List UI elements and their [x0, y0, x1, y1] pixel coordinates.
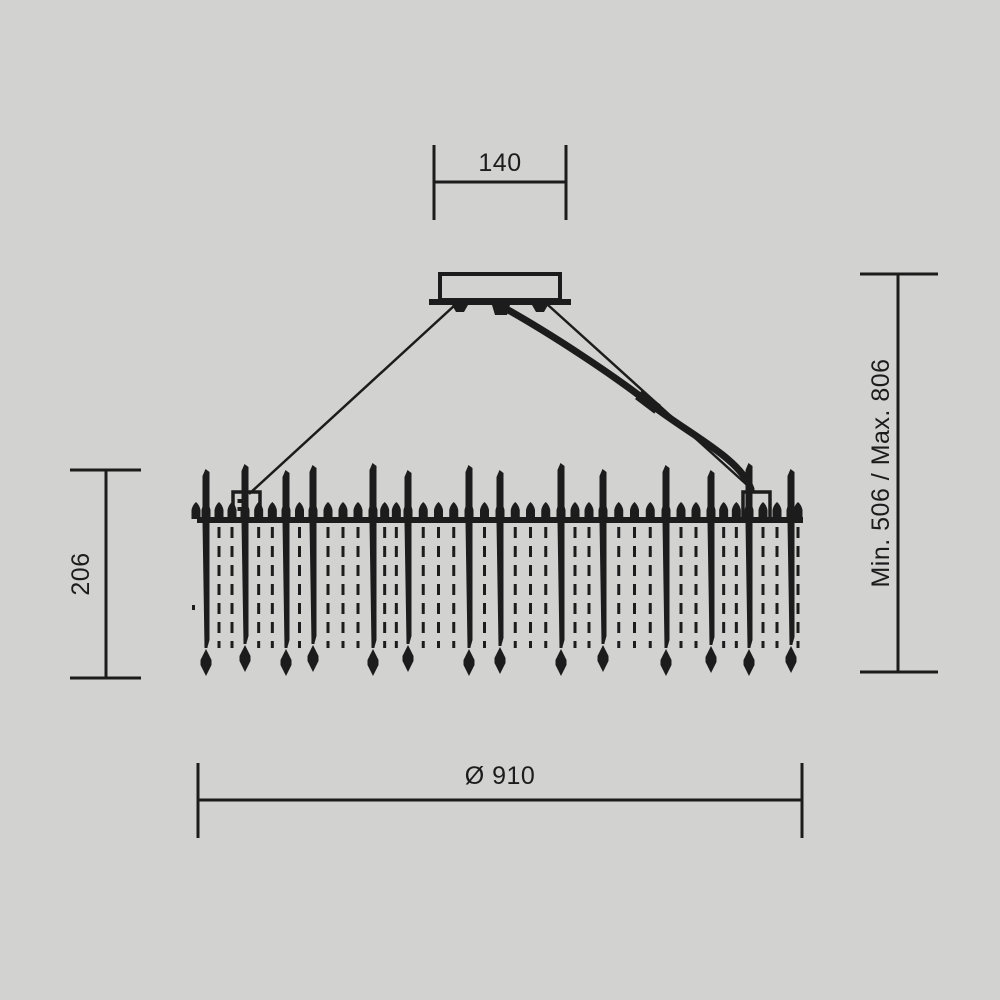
power-cable: [501, 306, 751, 489]
crystal-rod-lower: [558, 522, 565, 648]
flame-bead: [732, 502, 741, 519]
flame-bead: [339, 502, 348, 519]
ring-frame: [197, 517, 803, 523]
crystal-rod-lower: [283, 522, 290, 648]
crystal-rod-lower: [203, 522, 210, 648]
crystal-drop-tip: [598, 645, 609, 672]
flame-bead: [773, 502, 782, 519]
bracket-mark: [748, 507, 753, 511]
flame-bead: [677, 502, 686, 519]
flame-bead: [541, 502, 550, 519]
suspension-height-value: Min. 506 / Max. 806: [867, 358, 895, 587]
flame-bead: [794, 502, 803, 519]
chandelier-dimension-drawing: 140 206 Min. 506 / Max. 806 Ø 910: [0, 0, 1000, 1000]
flame-bead: [692, 502, 701, 519]
flame-bead: [295, 502, 304, 519]
flame-bead: [614, 502, 623, 519]
crystal-drop-tip: [281, 649, 292, 676]
crystal-rod-lower: [788, 522, 795, 645]
crystal-rod-lower: [663, 522, 670, 648]
dimension-suspension-height: Min. 506 / Max. 806: [860, 274, 938, 672]
flame-bead: [434, 502, 443, 519]
flame-bead: [719, 502, 728, 519]
crystal-rod-lower: [242, 522, 249, 644]
flame-bead: [759, 502, 768, 519]
crystal-rod-lower: [708, 522, 715, 645]
bracket-mark: [748, 499, 753, 503]
flame-bead: [419, 502, 428, 519]
flame-bead: [324, 502, 333, 519]
crystal-drop-tip: [495, 647, 506, 674]
crystal-drop-tip: [464, 649, 475, 676]
flame-bead: [480, 502, 489, 519]
crystal-drop-tip: [240, 645, 251, 672]
dimension-canopy-width: 140: [434, 145, 566, 220]
crystal-drop-tip: [786, 646, 797, 673]
stray-mark: [192, 605, 195, 610]
crystal-rods-lower: [201, 522, 797, 676]
fixture-height-value: 206: [67, 552, 95, 595]
crystal-drop-tip: [744, 649, 755, 676]
bracket-mark: [238, 499, 243, 503]
flame-bead: [380, 502, 389, 519]
diameter-value: Ø 910: [465, 762, 536, 790]
flame-bead: [449, 502, 458, 519]
crystal-rod-lower: [600, 522, 607, 644]
flame-bead: [646, 502, 655, 519]
flame-bead: [571, 502, 580, 519]
crystal-rod-lower: [310, 522, 317, 644]
dimension-fixture-height: 206: [67, 470, 141, 678]
flame-bead: [268, 502, 277, 519]
crystal-drop-tip: [706, 646, 717, 673]
bracket-mark: [238, 507, 243, 511]
diagram-stage: 140 206 Min. 506 / Max. 806 Ø 910: [0, 0, 1000, 1000]
canopy-width-value: 140: [478, 149, 521, 177]
crystal-rod-lower: [466, 522, 473, 648]
crystal-rod-lower: [370, 522, 377, 648]
crystal-drop-tip: [661, 649, 672, 676]
flame-bead: [511, 502, 520, 519]
crystal-rod-lower: [497, 522, 504, 646]
flame-bead: [585, 502, 594, 519]
crystal-drop-tip: [201, 649, 212, 676]
suspension-wire-left: [249, 305, 455, 494]
crystal-drop-tip: [403, 645, 414, 672]
flame-bead: [192, 502, 201, 519]
flame-bead: [354, 502, 363, 519]
flame-bead: [392, 502, 401, 519]
canopy-foot: [532, 305, 548, 312]
crystal-drop-tip: [368, 649, 379, 676]
flame-bead: [215, 502, 224, 519]
dimension-diameter: Ø 910: [198, 762, 802, 838]
crystal-rod-lower: [405, 522, 412, 644]
canopy-body: [440, 274, 560, 300]
crystal-drop-tip: [308, 645, 319, 672]
crystal-rod-lower: [746, 522, 753, 648]
flame-bead: [526, 502, 535, 519]
flame-bead: [630, 502, 639, 519]
crystal-drop-tip: [556, 649, 567, 676]
chandelier-body: [192, 463, 804, 676]
